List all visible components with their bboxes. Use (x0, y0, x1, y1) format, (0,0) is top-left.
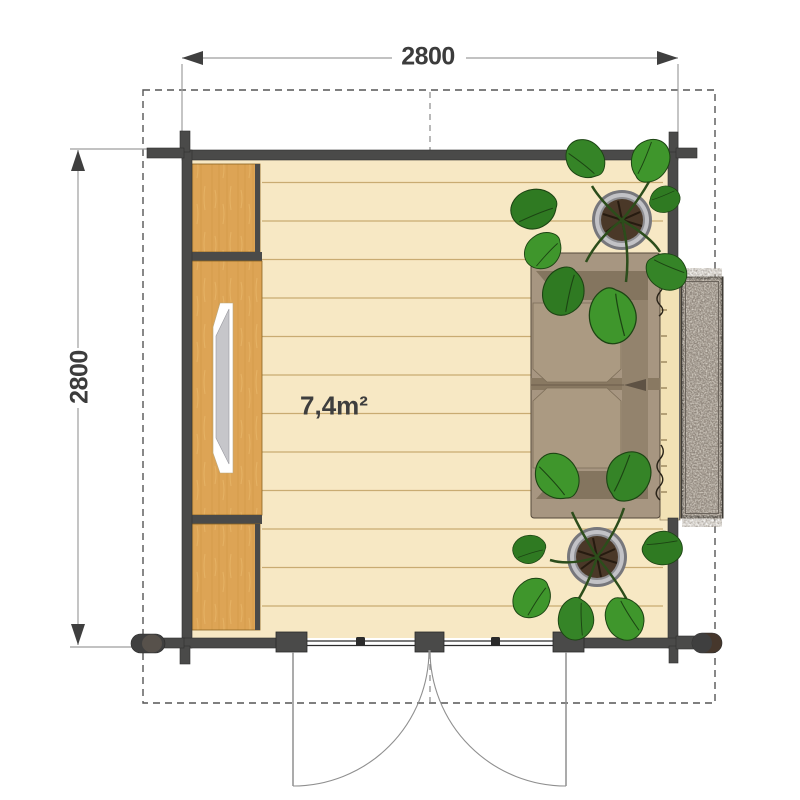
window-bench-left (192, 261, 262, 515)
wall-bottom-left (182, 638, 292, 648)
cabinet-divider-top (192, 252, 262, 261)
floor-area-label: 7,4m² (300, 391, 368, 422)
arrow-up-icon (71, 150, 85, 171)
double-door (276, 632, 584, 786)
door-swing-arc-right (430, 650, 566, 786)
arrow-left-icon (182, 51, 203, 65)
door-frame-center (415, 632, 444, 652)
cabinet-bottom-left (192, 524, 260, 630)
floor-plan-canvas: 2800 2800 7,4m² (0, 0, 800, 800)
door-hinge-right (491, 637, 500, 646)
door-hinge-left (356, 637, 365, 646)
floor-plan-drawing (0, 0, 800, 800)
corner-log-tl-horizontal (147, 148, 184, 158)
round-log-end-left (131, 634, 165, 653)
corner-log-bl-vertical (180, 646, 190, 664)
wall-left (182, 150, 192, 648)
corner-log-tr-horizontal (676, 148, 697, 158)
granite-planter (682, 278, 722, 517)
door-swing-arc-left (293, 650, 429, 786)
round-log-end-right (692, 633, 722, 653)
width-dimension-label: 2800 (401, 43, 455, 72)
door-frame-left (276, 632, 307, 652)
cabinet-top-left (192, 164, 260, 252)
depth-dimension-label: 2800 (66, 350, 95, 404)
arrow-right-icon (657, 51, 678, 65)
arrow-down-icon (71, 624, 85, 645)
cabinet-divider-bottom (192, 515, 262, 524)
